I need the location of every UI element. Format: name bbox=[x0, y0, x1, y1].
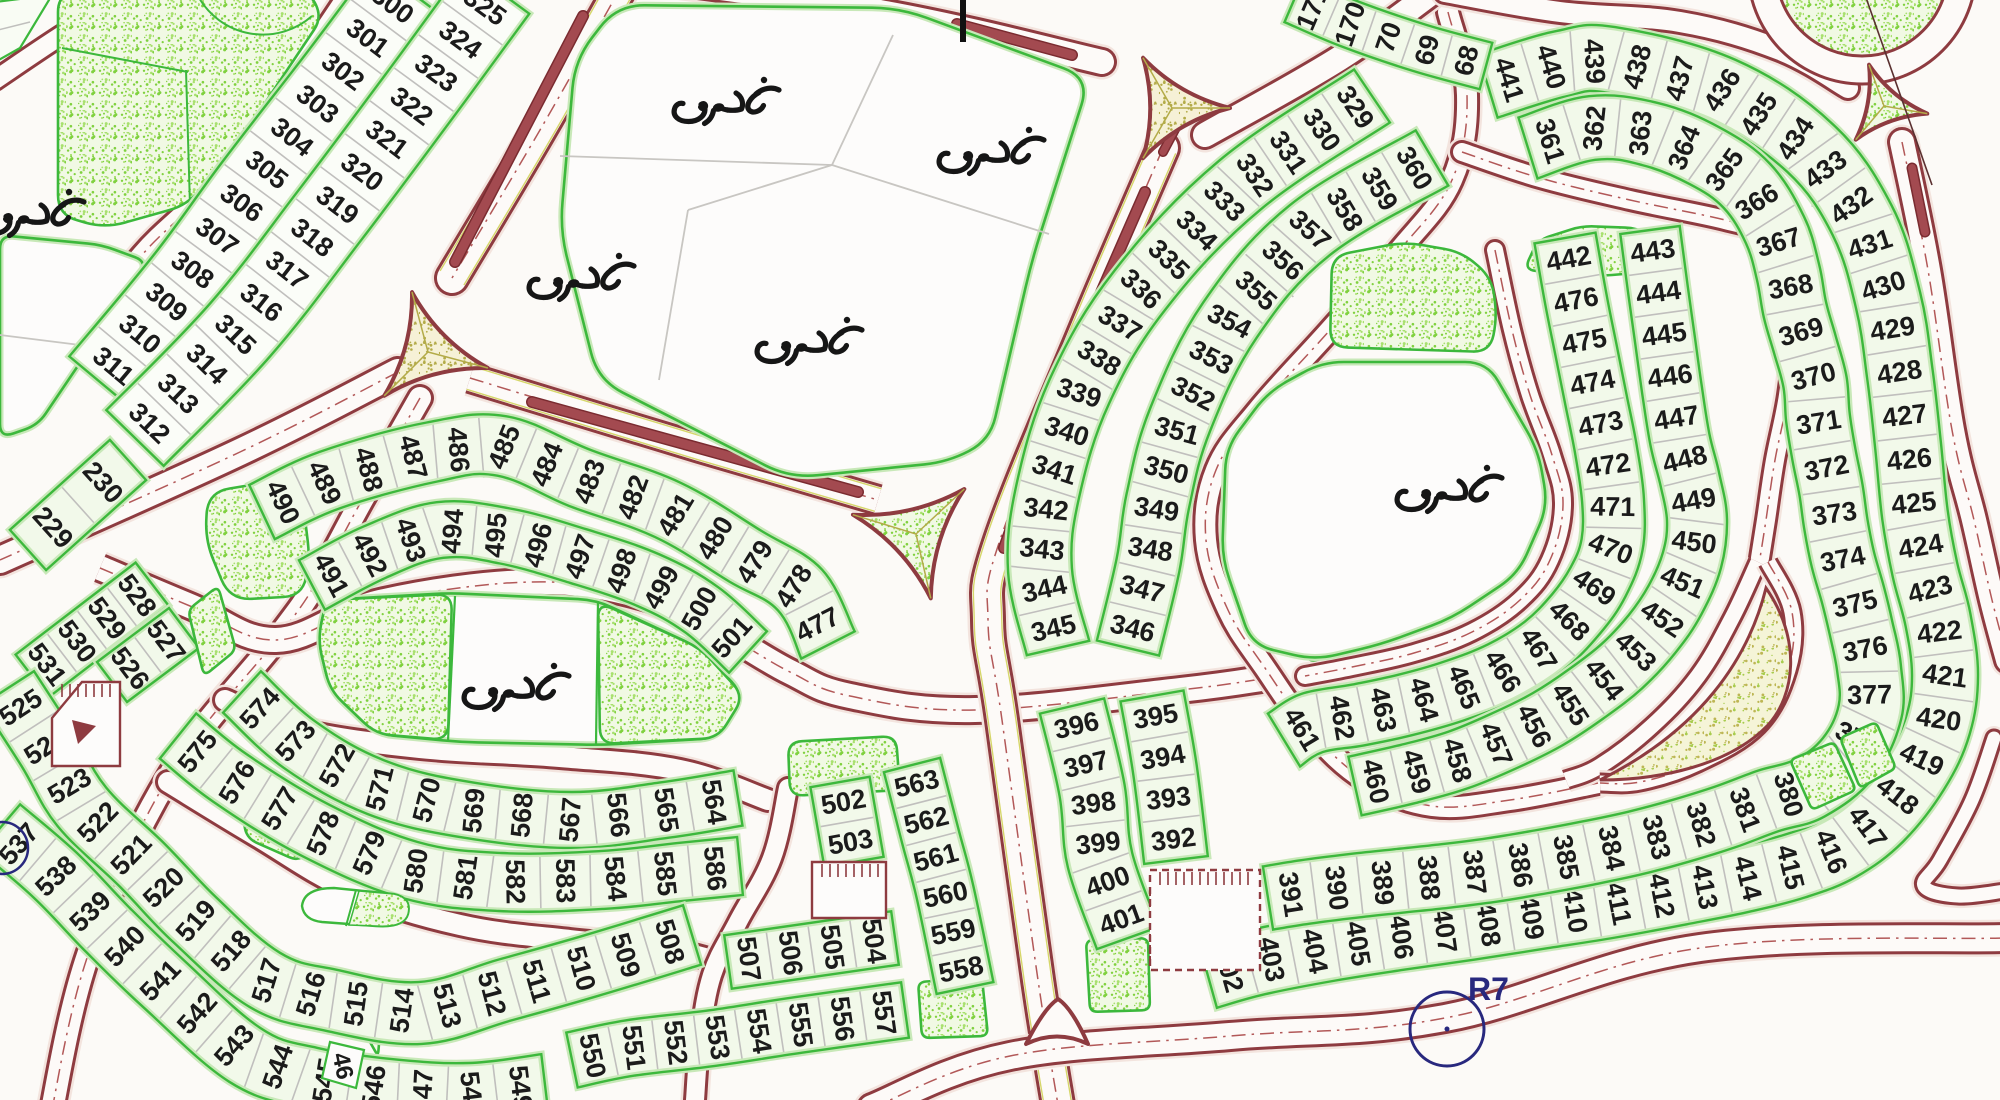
svg-text:421: 421 bbox=[1921, 658, 1970, 694]
svg-text:390: 390 bbox=[1319, 864, 1354, 912]
svg-text:377: 377 bbox=[1847, 679, 1893, 710]
svg-text:582: 582 bbox=[500, 859, 531, 905]
svg-text:504: 504 bbox=[856, 917, 892, 966]
svg-text:389: 389 bbox=[1365, 859, 1400, 907]
svg-text:427: 427 bbox=[1881, 398, 1929, 433]
svg-text:46: 46 bbox=[327, 1050, 359, 1082]
svg-text:585: 585 bbox=[648, 850, 683, 898]
svg-text:471: 471 bbox=[1590, 491, 1636, 522]
svg-text:586: 586 bbox=[698, 845, 733, 893]
svg-text:552: 552 bbox=[658, 1018, 693, 1066]
svg-text:R7: R7 bbox=[1468, 971, 1509, 1007]
svg-text:362: 362 bbox=[1577, 104, 1612, 152]
svg-text:446: 446 bbox=[1646, 358, 1695, 394]
svg-text:439: 439 bbox=[1578, 38, 1611, 85]
svg-text:426: 426 bbox=[1885, 442, 1933, 477]
svg-text:387: 387 bbox=[1457, 848, 1492, 896]
svg-text:514: 514 bbox=[384, 986, 420, 1035]
svg-text:548: 548 bbox=[454, 1070, 489, 1100]
svg-text:392: 392 bbox=[1149, 822, 1197, 857]
svg-text:580: 580 bbox=[398, 846, 434, 895]
svg-text:515: 515 bbox=[338, 979, 374, 1028]
svg-text:373: 373 bbox=[1810, 496, 1859, 532]
svg-text:557: 557 bbox=[866, 989, 902, 1038]
svg-text:407: 407 bbox=[1427, 906, 1463, 955]
svg-text:556: 556 bbox=[824, 994, 860, 1043]
svg-text:406: 406 bbox=[1384, 912, 1420, 961]
svg-text:494: 494 bbox=[436, 507, 470, 555]
svg-text:472: 472 bbox=[1584, 447, 1633, 483]
svg-text:420: 420 bbox=[1914, 701, 1963, 737]
svg-text:507: 507 bbox=[731, 935, 767, 984]
svg-text:555: 555 bbox=[783, 1000, 819, 1049]
svg-text:581: 581 bbox=[448, 853, 484, 902]
svg-text:363: 363 bbox=[1623, 109, 1658, 157]
svg-text:425: 425 bbox=[1890, 486, 1938, 521]
svg-text:343: 343 bbox=[1018, 532, 1066, 567]
svg-text:399: 399 bbox=[1074, 825, 1122, 860]
svg-text:393: 393 bbox=[1144, 781, 1192, 816]
svg-text:486: 486 bbox=[441, 426, 475, 474]
svg-text:583: 583 bbox=[550, 858, 581, 904]
svg-text:584: 584 bbox=[598, 855, 633, 903]
svg-text:568: 568 bbox=[505, 791, 539, 839]
svg-text:398: 398 bbox=[1069, 786, 1117, 821]
svg-text:388: 388 bbox=[1412, 854, 1447, 902]
svg-text:445: 445 bbox=[1640, 316, 1689, 352]
svg-text:443: 443 bbox=[1628, 233, 1677, 269]
svg-text:551: 551 bbox=[616, 1023, 651, 1071]
svg-text:547: 547 bbox=[406, 1068, 438, 1100]
svg-text:444: 444 bbox=[1634, 275, 1683, 311]
svg-text:567: 567 bbox=[553, 796, 587, 844]
svg-text:342: 342 bbox=[1022, 492, 1070, 527]
svg-text:549: 549 bbox=[503, 1064, 538, 1100]
svg-text:422: 422 bbox=[1915, 614, 1963, 649]
svg-text:505: 505 bbox=[814, 923, 850, 972]
svg-text:450: 450 bbox=[1670, 524, 1718, 559]
svg-text:495: 495 bbox=[479, 511, 513, 559]
svg-text:506: 506 bbox=[773, 929, 809, 978]
svg-text:566: 566 bbox=[601, 791, 636, 839]
svg-text:569: 569 bbox=[457, 787, 491, 835]
